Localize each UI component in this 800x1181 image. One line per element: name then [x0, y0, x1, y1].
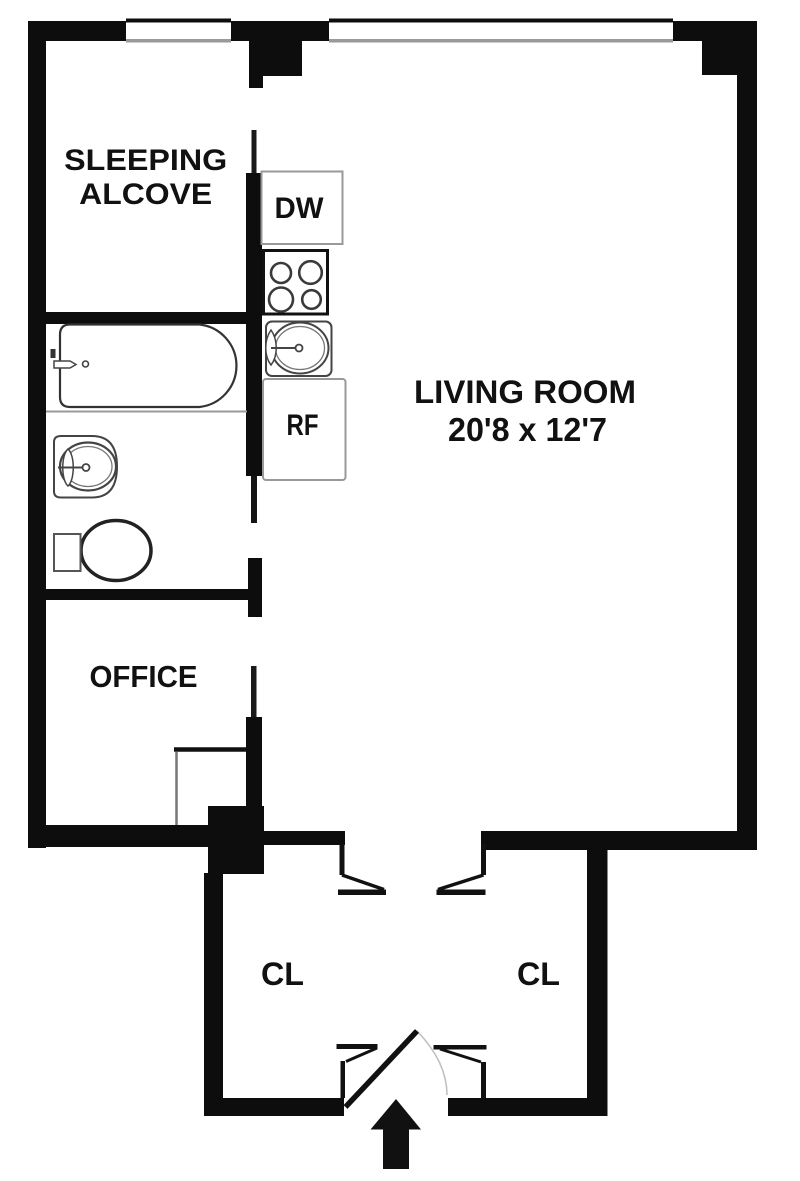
svg-text:RF: RF: [287, 409, 319, 442]
svg-text:20'8 x 12'7: 20'8 x 12'7: [448, 411, 607, 448]
svg-text:ALCOVE: ALCOVE: [79, 178, 212, 211]
svg-text:CL: CL: [261, 956, 304, 992]
svg-text:OFFICE: OFFICE: [90, 659, 198, 694]
svg-text:DW: DW: [275, 192, 325, 225]
svg-text:CL: CL: [517, 956, 560, 992]
svg-text:LIVING ROOM: LIVING ROOM: [414, 374, 636, 410]
svg-text:SLEEPING: SLEEPING: [64, 144, 227, 177]
